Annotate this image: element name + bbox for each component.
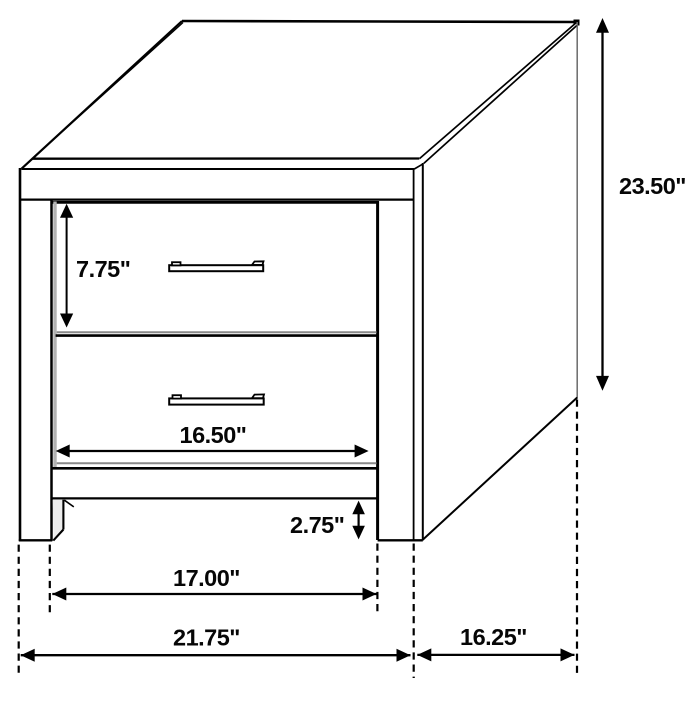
svg-text:21.75": 21.75" <box>173 625 240 651</box>
svg-text:16.50": 16.50" <box>180 422 247 448</box>
svg-text:23.50": 23.50" <box>619 173 686 199</box>
svg-text:16.25": 16.25" <box>460 624 527 650</box>
svg-text:17.00": 17.00" <box>173 565 240 591</box>
svg-text:2.75": 2.75" <box>290 512 344 538</box>
svg-text:7.75": 7.75" <box>76 256 130 282</box>
